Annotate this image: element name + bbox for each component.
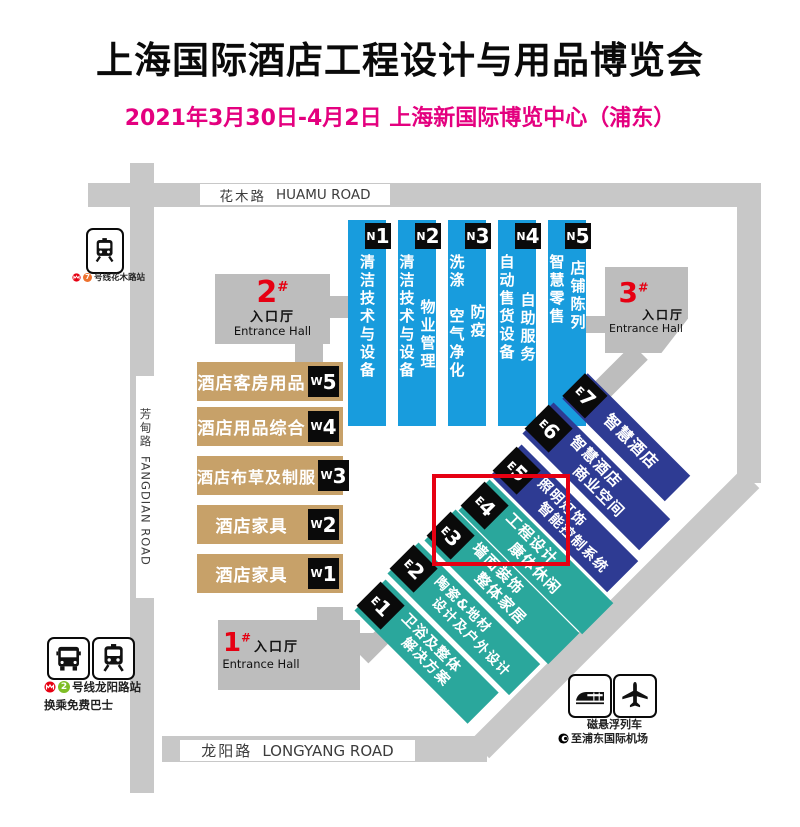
highlight-box xyxy=(432,474,570,566)
road-label-fangdian: 芳甸路 FANGDIAN ROAD xyxy=(136,376,155,598)
airplane-icon xyxy=(613,674,657,718)
hall-w2-text: 酒店家具 xyxy=(197,512,308,537)
hall-n4-text-2: 自助服务 xyxy=(519,292,537,364)
hall-w5: 酒店客房用品 W5 xyxy=(197,362,343,401)
shanghai-metro-logo-icon-2 xyxy=(44,681,56,693)
page-subtitle: 2021年3月30日-4月2日 上海新国际博览中心（浦东） xyxy=(0,100,800,132)
hall-n2-text-2: 物业管理 xyxy=(419,299,437,380)
hall-n5-text-1: 智慧零售 xyxy=(548,254,566,332)
maglev-logo-icon xyxy=(558,733,569,744)
hall-n2-label: N2 xyxy=(415,223,441,249)
hall-w3-label: W3 xyxy=(318,460,349,491)
hall-n4: N4 自动售货设备 自助服务 xyxy=(498,220,536,426)
entrance-hall-1-stub xyxy=(317,607,343,621)
hall-n1-text: 清洁技术与设备 xyxy=(358,254,376,380)
shanghai-metro-logo-icon xyxy=(72,273,81,282)
hall-w5-text: 酒店客房用品 xyxy=(197,369,308,394)
road-right xyxy=(737,183,761,483)
hall-w1-label: W1 xyxy=(308,558,339,589)
entrance-hall-1: 1# 入口厅 Entrance Hall xyxy=(222,630,300,670)
hall-n1-label: N1 xyxy=(365,223,391,249)
entrance-hall-2-stub xyxy=(295,344,323,363)
hall-n3-text-3: 防疫 xyxy=(469,304,487,380)
entrance-hall-2: 2# 入口厅 Entrance Hall xyxy=(215,277,330,337)
huamu-station-caption: 7 号线花木路站 xyxy=(72,271,145,283)
metro-train-icon-2 xyxy=(92,637,135,680)
hall-w2-label: W2 xyxy=(308,509,339,540)
maglev-caption-2: 至浦东国际机场 xyxy=(558,730,648,746)
hall-n3-text-2: 空气净化 xyxy=(448,308,466,380)
hall-w1: 酒店家具 W1 xyxy=(197,554,343,593)
longyang-station-caption: 2 号线龙阳路站 xyxy=(44,679,141,695)
hall-n3: N3 洗涤 空气净化 防疫 xyxy=(448,220,486,426)
hall-w1-text: 酒店家具 xyxy=(197,561,308,586)
hall-n2-text-1: 清洁技术与设备 xyxy=(398,254,416,380)
hall-w3: 酒店布草及制服 W3 xyxy=(197,456,343,495)
hall-n4-text-1: 自动售货设备 xyxy=(498,254,516,364)
hall-w5-label: W5 xyxy=(308,366,339,397)
hall-n5-label: N5 xyxy=(565,223,591,249)
hall-w2: 酒店家具 W2 xyxy=(197,505,343,544)
page-title: 上海国际酒店工程设计与用品博览会 xyxy=(0,30,800,84)
bus-icon xyxy=(47,637,90,680)
hall-n3-text-1: 洗涤 xyxy=(448,254,466,290)
hall-w3-text: 酒店布草及制服 xyxy=(197,464,318,488)
hall-w4-label: W4 xyxy=(308,411,339,442)
hall-n1: N1 清洁技术与设备 xyxy=(348,220,386,426)
hall-n3-label: N3 xyxy=(465,223,491,249)
entrance-hall-3: 3# 入口厅 Entrance Hall xyxy=(602,278,690,335)
road-huamu xyxy=(88,183,760,207)
hall-n5-text-2: 店铺陈列 xyxy=(569,260,587,332)
road-label-huamu: 花木路 HUAMU ROAD xyxy=(200,184,390,205)
longyang-station-caption-2: 换乘免费巴士 xyxy=(44,697,113,713)
expo-map-poster: 上海国际酒店工程设计与用品博览会 2021年3月30日-4月2日 上海新国际博览… xyxy=(0,0,800,827)
line-2-badge: 2 xyxy=(58,681,70,693)
metro-train-icon xyxy=(86,228,124,274)
hall-w4-text: 酒店用品综合 xyxy=(197,414,308,439)
maglev-train-icon xyxy=(568,674,612,718)
hall-w4: 酒店用品综合 W4 xyxy=(197,407,343,446)
road-label-longyang: 龙阳路 LONGYANG ROAD xyxy=(180,740,415,761)
hall-n4-label: N4 xyxy=(515,223,541,249)
hall-n2: N2 清洁技术与设备 物业管理 xyxy=(398,220,436,426)
line-7-badge: 7 xyxy=(83,273,92,282)
